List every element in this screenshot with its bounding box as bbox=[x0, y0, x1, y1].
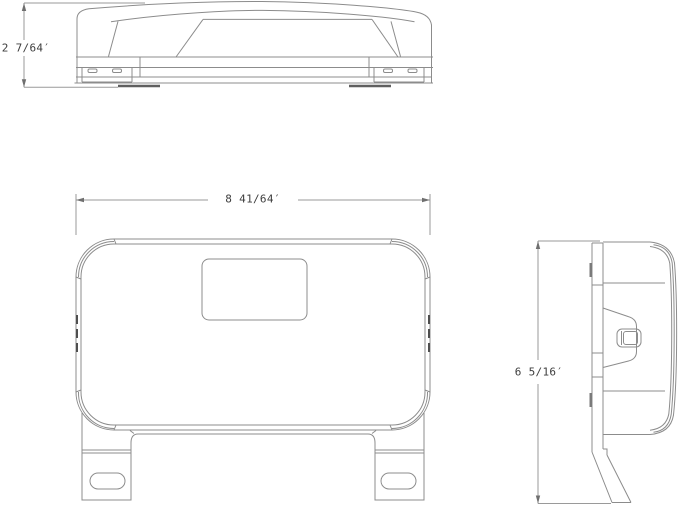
side-view-upper-clip bbox=[590, 263, 593, 277]
front-view-right-bracket bbox=[375, 413, 424, 500]
side-view-drawing bbox=[590, 242, 677, 503]
technical-drawing-canvas: 2 7/64′ 8 41/64′ 6 5/16′ bbox=[0, 0, 679, 506]
right-bracket-slot bbox=[381, 473, 416, 489]
top-view-right-foot bbox=[349, 57, 424, 86]
front-view-width-label: 8 41/64′ bbox=[222, 193, 283, 206]
top-view-left-foot bbox=[82, 57, 160, 86]
left-bracket-slot bbox=[90, 473, 125, 489]
side-view-latch bbox=[617, 329, 641, 347]
front-view-drawing bbox=[76, 239, 430, 500]
front-view-left-bracket bbox=[82, 413, 131, 500]
side-view-height-label: 6 5/16′ bbox=[512, 366, 566, 379]
front-view-label-window bbox=[202, 259, 307, 320]
side-view-lower-clip bbox=[590, 393, 593, 407]
top-view-height-label: 2 7/64′ bbox=[0, 42, 53, 55]
drawing-sheet bbox=[0, 0, 679, 506]
top-view-drawing bbox=[75, 1, 434, 86]
